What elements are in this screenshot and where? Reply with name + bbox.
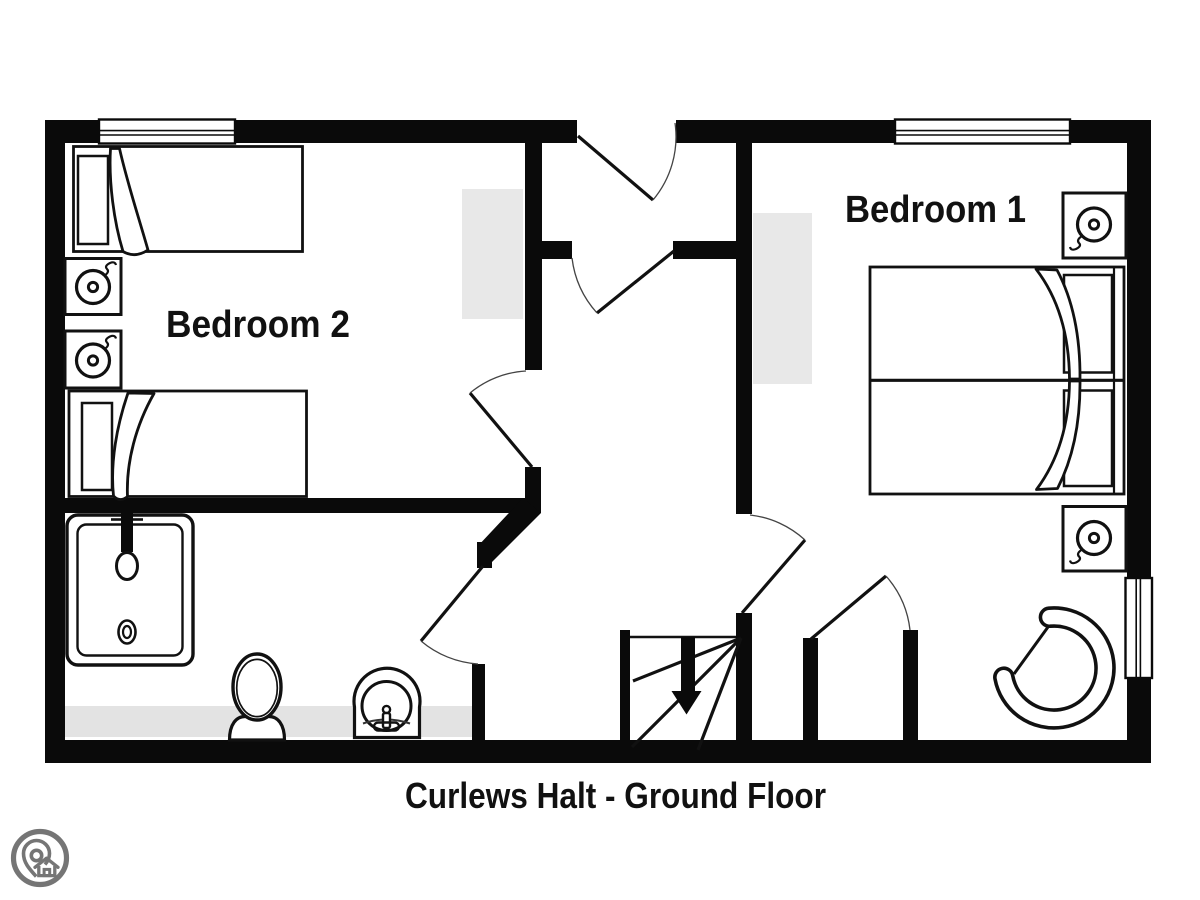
svg-text:Bedroom 1: Bedroom 1 xyxy=(845,189,1026,231)
svg-text:Bedroom 2: Bedroom 2 xyxy=(166,304,350,346)
svg-text:Curlews Halt - Ground Floor: Curlews Halt - Ground Floor xyxy=(405,775,826,816)
